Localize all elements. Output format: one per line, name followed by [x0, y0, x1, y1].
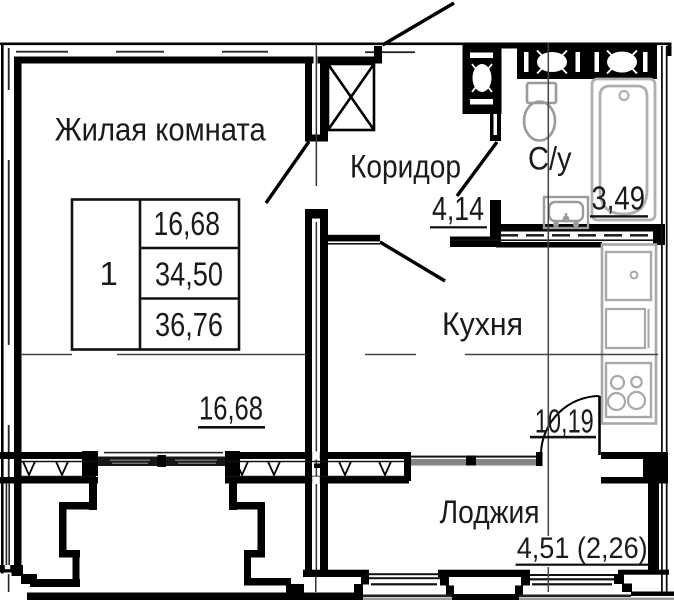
svg-text:Коридор: Коридор: [350, 148, 461, 184]
svg-text:34,50: 34,50: [155, 256, 223, 293]
svg-text:16,68: 16,68: [154, 205, 221, 242]
svg-text:Лоджия: Лоджия: [440, 494, 540, 530]
svg-text:Кухня: Кухня: [442, 306, 523, 342]
svg-text:36,76: 36,76: [155, 306, 223, 343]
svg-text:4,14: 4,14: [432, 191, 484, 228]
svg-text:4,51 (2,26): 4,51 (2,26): [517, 532, 648, 565]
svg-text:С/у: С/у: [528, 141, 572, 177]
svg-text:16,68: 16,68: [199, 391, 263, 428]
svg-text:Жилая комната: Жилая комната: [55, 112, 266, 148]
svg-text:10,19: 10,19: [535, 403, 594, 440]
svg-text:1: 1: [100, 255, 118, 292]
svg-text:3,49: 3,49: [592, 181, 646, 218]
